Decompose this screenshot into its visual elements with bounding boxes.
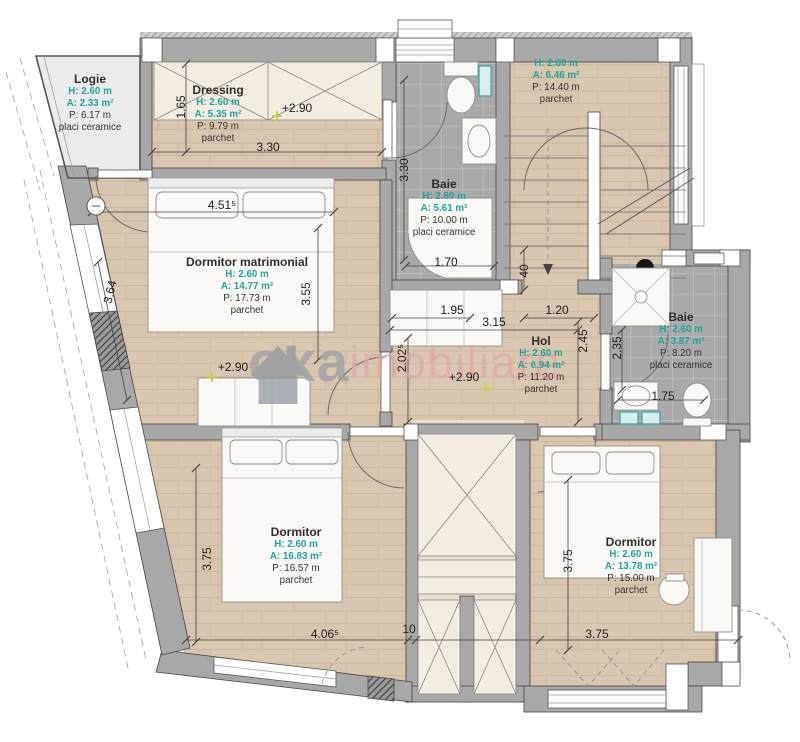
room-name: Baie <box>413 178 476 191</box>
room-perimeter: P: 9.79 m <box>192 121 243 133</box>
dimension-label: 4.51⁵ <box>208 198 236 212</box>
dimension-label: 10 <box>402 622 415 636</box>
room-name: Dormitor <box>270 526 322 539</box>
room-perimeter: P: 17.73 m <box>186 293 308 305</box>
dimension-label: 3.30 <box>397 158 411 181</box>
room-height: H: 2.60 m <box>518 348 565 360</box>
dimension-label: 3.30 <box>256 140 279 154</box>
room-height: H: 2.60 m <box>59 86 122 98</box>
room-floor-type: parchet <box>605 585 657 597</box>
room-perimeter: P: 16.57 m <box>270 563 322 575</box>
dimension-label: 1.70 <box>434 255 457 269</box>
room-label-stair-hall: H: 2.60 m A: 6.46 m² P: 14.40 m parchet <box>532 58 579 106</box>
room-label-dressing: Dressing H: 2.60 m A: 5.35 m² P: 9.79 m … <box>192 84 243 145</box>
room-floor-type: parchet <box>186 305 308 317</box>
room-area: A: 14.77 m² <box>186 281 308 293</box>
room-floor-type: placi ceramice <box>413 227 476 239</box>
dimension-label: 3.75 <box>561 549 575 572</box>
room-floor-type: placi ceramice <box>650 360 713 372</box>
dimension-label: 1.95 <box>440 303 463 317</box>
room-area: A: 13.78 m² <box>605 561 657 573</box>
room-height: H: 2.60 m <box>413 191 476 203</box>
room-area: A: 16.83 m² <box>270 551 322 563</box>
room-height: H: 2.60 m <box>605 549 657 561</box>
room-area: A: 5.61 m² <box>413 203 476 215</box>
dimension-label: 4.06⁵ <box>311 627 339 641</box>
dimension-label: 1.65 <box>174 95 188 118</box>
dimension-label: +2.90 <box>449 370 479 384</box>
room-label-baie-top: Baie H: 2.60 m A: 5.61 m² P: 10.00 m pla… <box>413 178 476 239</box>
room-label-dormitor-right: Dormitor H: 2.60 m A: 13.78 m² P: 15.00 … <box>605 536 657 597</box>
room-floor-type: placi ceramice <box>59 122 122 134</box>
dimension-label: 40 <box>517 264 531 277</box>
dimension-label: 2.02⁵ <box>395 344 409 372</box>
room-perimeter: P: 8.20 m <box>650 348 713 360</box>
room-perimeter: P: 10.00 m <box>413 215 476 227</box>
room-area: A: 2.33 m² <box>59 98 122 110</box>
room-height: H: 2.60 m <box>532 58 579 70</box>
floor-plan: oxaimobiliare Logie H: 2.60 m A: 2.33 m²… <box>0 0 800 742</box>
dimension-label: 2.45 <box>576 329 590 352</box>
room-perimeter: P: 11.20 m <box>518 372 565 384</box>
room-name: Dressing <box>192 84 243 97</box>
dimension-label: 1.20 <box>545 303 568 317</box>
room-floor-type: parchet <box>192 133 243 145</box>
dimension-label: +2.90 <box>218 360 248 374</box>
wall-tag-symbol <box>87 197 105 215</box>
room-label-baie-right: Baie H: 2.60 m A: 3.87 m² P: 8.20 m plac… <box>650 311 713 372</box>
room-area: A: 6.94 m² <box>518 360 565 372</box>
room-floor-type: parchet <box>270 575 322 587</box>
dimension-label: 3.55 <box>299 282 313 305</box>
dimension-label: 1.75 <box>651 389 674 403</box>
dimension-label: +2.90 <box>282 101 312 115</box>
room-perimeter: P: 6.17 m <box>59 110 122 122</box>
room-floor-type: parchet <box>518 384 565 396</box>
room-name: Hol <box>518 335 565 348</box>
room-name: Baie <box>650 311 713 324</box>
room-name: Dormitor matrimonial <box>186 256 308 269</box>
dimension-label: 3.75 <box>585 627 608 641</box>
room-perimeter: P: 15.00 m <box>605 573 657 585</box>
dimension-label: 2.35 <box>610 336 624 359</box>
room-height: H: 2.60 m <box>270 539 322 551</box>
dimension-label: 3.15 <box>482 315 505 329</box>
room-height: H: 2.60 m <box>186 269 308 281</box>
room-label-dormitor-left: Dormitor H: 2.60 m A: 16.83 m² P: 16.57 … <box>270 526 322 587</box>
room-area: A: 6.46 m² <box>532 70 579 82</box>
room-name: Dormitor <box>605 536 657 549</box>
room-area: A: 5.35 m² <box>192 109 243 121</box>
room-name: Logie <box>59 73 122 86</box>
room-label-logie: Logie H: 2.60 m A: 2.33 m² P: 6.17 m pla… <box>59 73 122 134</box>
room-label-dormitor-matrimonial: Dormitor matrimonial H: 2.60 m A: 14.77 … <box>186 256 308 317</box>
room-height: H: 2.60 m <box>192 97 243 109</box>
room-height: H: 2.60 m <box>650 324 713 336</box>
room-label-hol: Hol H: 2.60 m A: 6.94 m² P: 11.20 m parc… <box>518 335 565 396</box>
room-floor-type: parchet <box>532 94 579 106</box>
room-perimeter: P: 14.40 m <box>532 82 579 94</box>
room-area: A: 3.87 m² <box>650 336 713 348</box>
dimension-label: 3.75 <box>200 547 214 570</box>
